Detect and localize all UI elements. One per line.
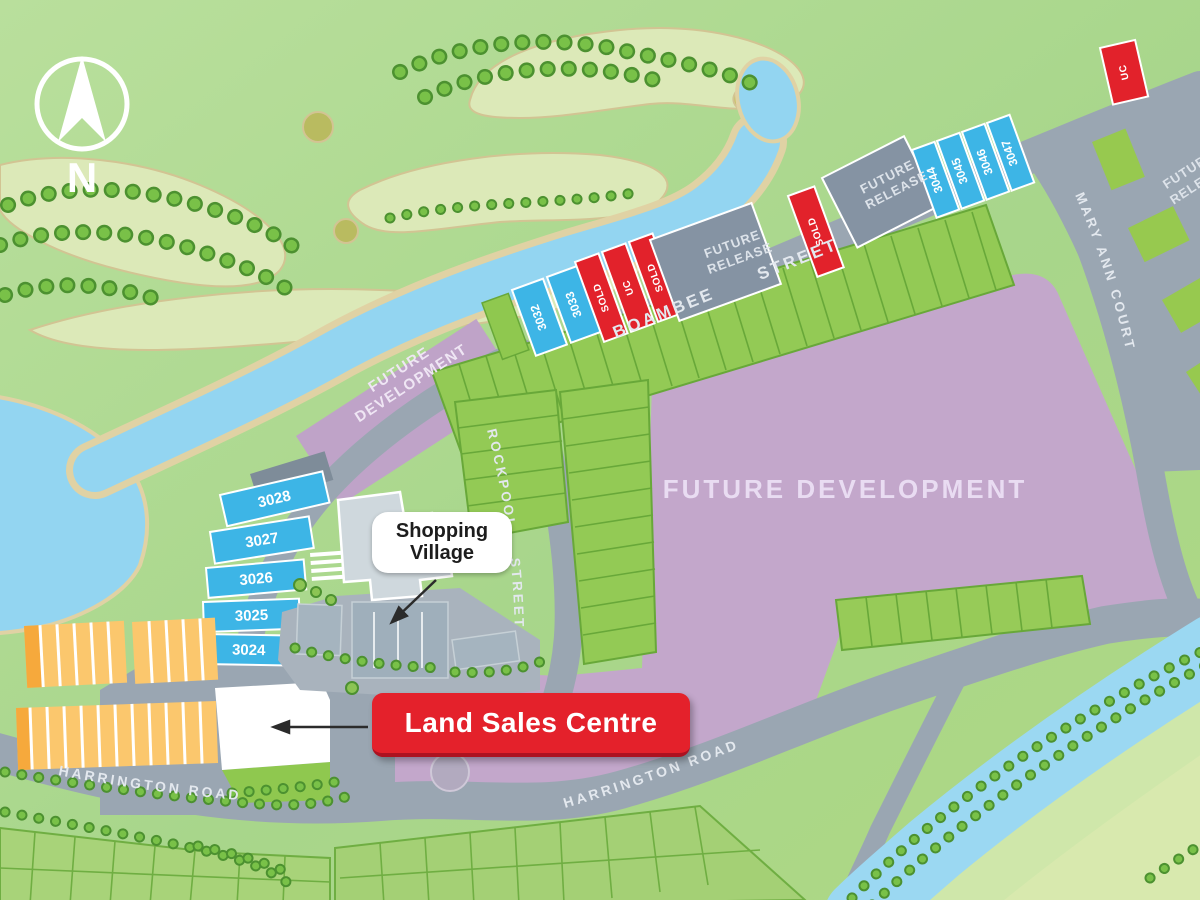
land-sales-centre-label: Land Sales Centre [405, 707, 658, 739]
estate-map: 3032 3033 SOLD UC SOLD SOLD [0, 0, 1200, 900]
svg-text:3025: 3025 [235, 607, 269, 625]
future-development-main-label: FUTURE DEVELOPMENT [663, 474, 1028, 504]
lot-label: 3025 [235, 607, 269, 625]
roundabout [431, 753, 469, 791]
lot-label: 3026 [239, 569, 274, 589]
map-canvas: 3032 3033 SOLD UC SOLD SOLD [0, 0, 1200, 900]
golf-green [303, 112, 333, 142]
svg-text:3024: 3024 [232, 641, 266, 659]
golf-green [334, 219, 358, 243]
lot-label: 3024 [232, 641, 266, 659]
land-sales-centre-badge: Land Sales Centre [372, 693, 690, 757]
compass-n-label: N [67, 154, 97, 201]
shopping-village-callout: Shopping Village [372, 512, 512, 573]
shopping-village-line1: Shopping [378, 520, 506, 542]
shopping-village-line2: Village [378, 542, 506, 564]
outbuilding [296, 604, 342, 656]
svg-text:3026: 3026 [239, 569, 274, 589]
